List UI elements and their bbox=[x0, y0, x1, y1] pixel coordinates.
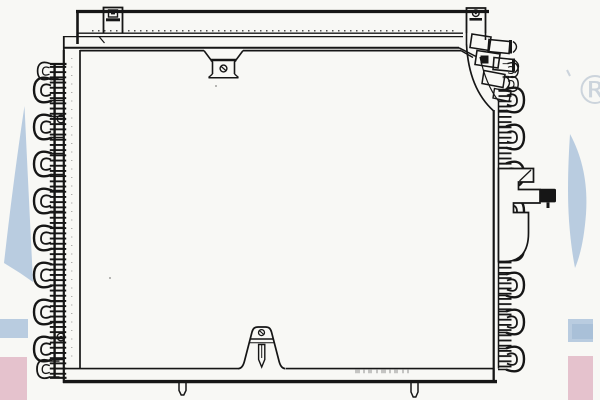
watermark-blue-bar-right-inner bbox=[572, 324, 593, 339]
watermark-letter-fragment-right bbox=[568, 134, 586, 268]
screw-bracket-bottom-center bbox=[238, 327, 286, 369]
watermark-tick bbox=[567, 70, 570, 76]
side-bracket-with-bolt-right bbox=[499, 169, 557, 262]
condenser-outline bbox=[34, 8, 556, 398]
registered-symbol: ® bbox=[575, 68, 600, 114]
drawing-canvas: ® bbox=[0, 0, 600, 400]
core-top-edge bbox=[80, 51, 473, 58]
watermark-pink-bar-left bbox=[0, 357, 27, 400]
top-mounting-rail bbox=[63, 11, 489, 57]
mounting-pin-bottom-left bbox=[179, 383, 186, 395]
watermark-blue-bar-left bbox=[0, 319, 28, 338]
bottom-rail bbox=[63, 368, 497, 383]
watermark-pink-bar-right bbox=[568, 356, 593, 400]
mounting-pin-bottom-right bbox=[411, 383, 418, 397]
serpentine-fin-coil-left bbox=[34, 62, 67, 378]
mounting-tab-top-right bbox=[467, 8, 486, 44]
screw-bracket-top-center bbox=[204, 51, 243, 78]
condenser-technical-drawing: ® bbox=[0, 0, 600, 400]
bolt-icon bbox=[540, 189, 557, 203]
ink-specks bbox=[109, 85, 217, 279]
side-plate-left bbox=[64, 50, 80, 383]
watermark-letter-fragment-left bbox=[4, 106, 33, 282]
